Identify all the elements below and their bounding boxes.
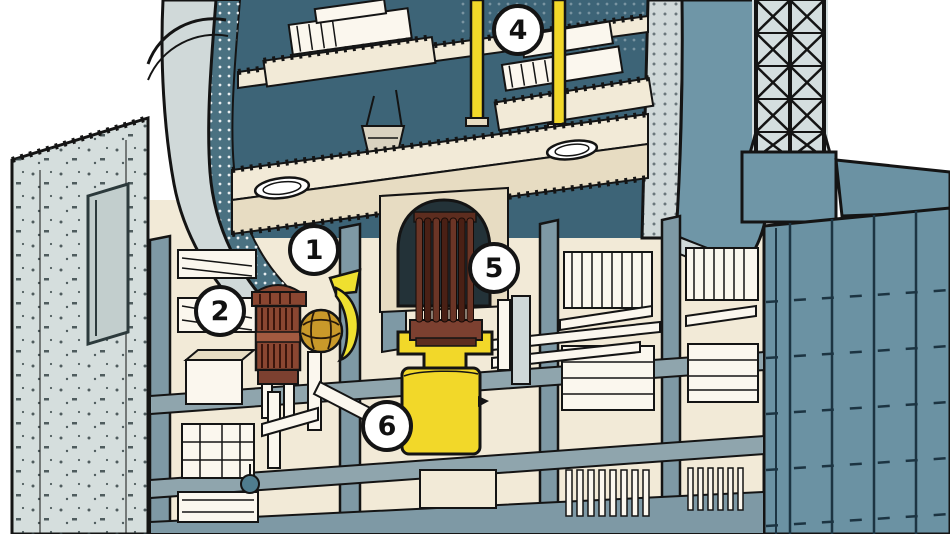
callout-4: 4: [492, 4, 544, 56]
lattice-crane-tower: [748, 0, 832, 160]
callout-5-number: 5: [485, 255, 504, 282]
callout-2-number: 2: [211, 298, 230, 325]
callout-4-number: 4: [509, 17, 528, 44]
callout-6-number: 6: [378, 413, 397, 440]
tower-pedestal: [742, 152, 836, 222]
under-vessel-box: [420, 470, 496, 508]
reactor-cutaway-figure: 1 2 4 5 6: [0, 0, 950, 534]
panel-facade: [764, 208, 950, 534]
right-building: [742, 152, 950, 534]
callout-1-number: 1: [305, 237, 324, 264]
callout-2: 2: [194, 285, 246, 337]
left-shield-wall: [12, 118, 148, 534]
callout-1: 1: [288, 224, 340, 276]
reactor-vessel: [398, 332, 492, 454]
callout-6: 6: [361, 400, 413, 452]
valve: [241, 475, 259, 493]
callout-5: 5: [468, 242, 520, 294]
